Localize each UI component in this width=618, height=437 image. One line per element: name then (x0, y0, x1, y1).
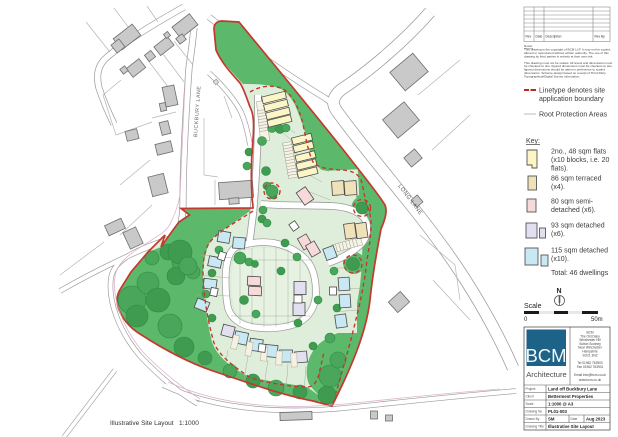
svg-text:Aug 2023: Aug 2023 (586, 417, 606, 422)
svg-text:50m: 50m (591, 317, 603, 323)
svg-text:93 sqm detached: 93 sqm detached (551, 223, 605, 230)
svg-text:SO21 3NZ: SO21 3NZ (582, 353, 597, 357)
svg-text:86 sqm terraced: 86 sqm terraced (551, 176, 602, 183)
svg-text:PL01-003: PL01-003 (548, 409, 567, 414)
svg-text:Rev By: Rev By (595, 35, 606, 39)
svg-text:www.bcm.co.uk: www.bcm.co.uk (579, 378, 602, 382)
svg-text:BUCKBURY LANE: BUCKBURY LANE (193, 85, 203, 137)
svg-text:Drawing No: Drawing No (526, 410, 543, 414)
svg-text:Land off Buckbury Lane: Land off Buckbury Lane (548, 387, 598, 392)
svg-text:Root Protection Areas: Root Protection Areas (539, 112, 608, 119)
svg-text:Key:: Key: (526, 138, 540, 145)
svg-text:Description: Description (546, 35, 562, 39)
svg-text:80 sqm semi-: 80 sqm semi- (551, 199, 594, 206)
svg-text:Date: Date (536, 35, 543, 39)
svg-text:Fax 01962 763901: Fax 01962 763901 (577, 365, 604, 369)
svg-text:application boundary: application boundary (539, 96, 604, 103)
svg-text:Client: Client (526, 395, 534, 399)
svg-text:Drawn By: Drawn By (526, 417, 540, 421)
svg-text:N: N (557, 288, 562, 295)
svg-text:(x10).: (x10). (551, 256, 569, 263)
svg-text:flats).: flats). (551, 166, 568, 173)
svg-text:Illustrative Site Layout 1:1: Illustrative Site Layout 1:1000 (110, 420, 199, 427)
svg-text:Betterment Properties: Betterment Properties (548, 394, 594, 399)
svg-text:Architecture: Architecture (526, 370, 567, 379)
svg-text:Drawing Title: Drawing Title (526, 425, 545, 429)
svg-text:Scale: Scale (526, 402, 534, 406)
svg-text:Topographical/Digital Survey i: Topographical/Digital Survey information (524, 74, 580, 78)
svg-text:1:1000 @ A3: 1:1000 @ A3 (548, 402, 574, 407)
svg-text:2no., 48 sqm flats: 2no., 48 sqm flats (551, 149, 607, 156)
svg-text:Email info@bcm.co.uk: Email info@bcm.co.uk (574, 373, 606, 377)
svg-text:detached (x6).: detached (x6). (551, 207, 596, 214)
svg-text:Project: Project (526, 387, 536, 391)
svg-text:drawing by third parties is en: drawing by third parties is entirely at … (524, 54, 593, 58)
svg-text:Illustrative Site Layout: Illustrative Site Layout (548, 424, 594, 429)
svg-text:(x10 blocks, i.e. 20: (x10 blocks, i.e. 20 (551, 157, 609, 164)
svg-text:(x4).: (x4). (551, 184, 565, 191)
svg-text:Total: 46 dwellings: Total: 46 dwellings (551, 270, 609, 277)
svg-text:Date: Date (571, 417, 578, 421)
svg-text:BCM: BCM (525, 345, 566, 366)
svg-text:115 sqm detached: 115 sqm detached (551, 248, 608, 255)
svg-text:0: 0 (524, 317, 528, 323)
svg-text:SM: SM (548, 417, 555, 422)
svg-text:Scale: Scale (524, 303, 542, 310)
svg-text:(x6).: (x6). (551, 231, 565, 238)
svg-text:Linetype denotes site: Linetype denotes site (539, 88, 605, 95)
svg-text:Rev: Rev (526, 35, 532, 39)
